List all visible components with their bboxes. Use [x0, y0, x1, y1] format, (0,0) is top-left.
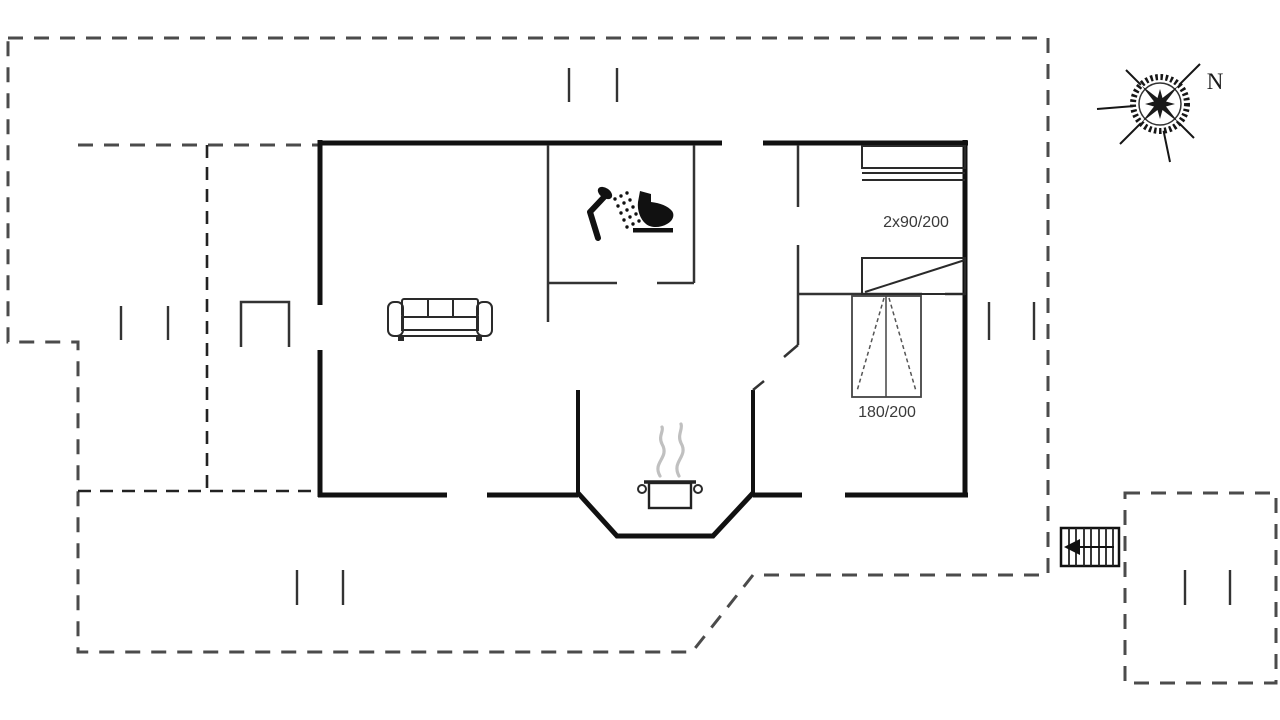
terrace-outline: [8, 38, 1048, 652]
floor-plan-drawing: 2x90/200 180/200 N: [0, 0, 1280, 720]
double-bed-label: 180/200: [858, 404, 916, 421]
double-bed: [852, 296, 921, 397]
shower-spray-dots: [613, 191, 640, 228]
bunk-bed-label: 2x90/200: [883, 214, 949, 231]
terrace-opening-ticks: [121, 68, 1230, 605]
steam-icon: [658, 424, 683, 476]
terrace-annex-outline: [1125, 493, 1276, 683]
stairs-icon: [1061, 528, 1119, 566]
terrace-divider-lines: [78, 145, 318, 491]
terrace-planter: [241, 302, 289, 347]
toilet-icon: [633, 191, 673, 233]
compass-rose-icon: [1097, 64, 1200, 162]
sofa-icon: [388, 299, 492, 341]
floor-plan: 2x90/200 180/200 N: [0, 0, 1280, 720]
compass-north-label: N: [1207, 69, 1224, 94]
cooking-pot-icon: [638, 482, 702, 508]
